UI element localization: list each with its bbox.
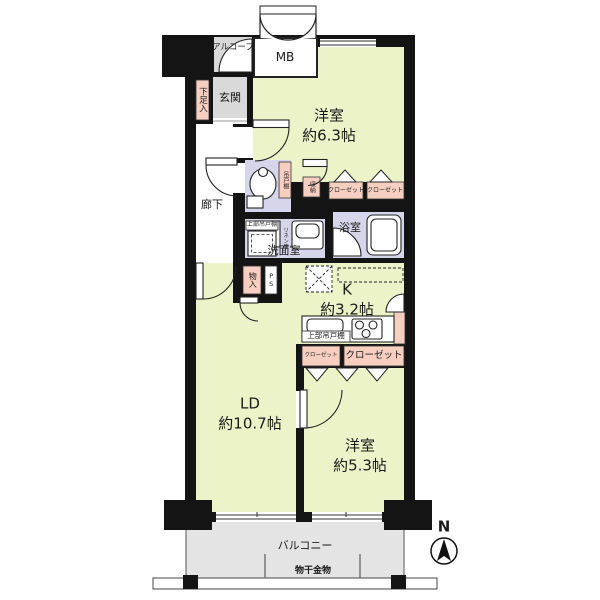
bedroom2-size: 約5.3帖 (333, 456, 387, 476)
upper-cabinet-label: 上部吊戸棚 (307, 331, 345, 341)
bedroom1-label: 洋室 約6.3帖 (302, 107, 356, 146)
kitchen-name: K (320, 281, 374, 301)
meter-box (254, 6, 317, 77)
bedroom1-name: 洋室 (302, 107, 356, 127)
washroom-label: 洗面室 (268, 244, 301, 258)
north-label: N (438, 517, 451, 537)
kitchen-cabinet-strip (394, 312, 405, 344)
kitchen-sink (307, 319, 343, 332)
closet1-label: クローゼット (328, 187, 364, 195)
living-dining-label: LD 約10.7帖 (218, 395, 281, 434)
bedroom1-size: 約6.3帖 (302, 126, 356, 146)
bath-label: 浴室 (339, 221, 361, 235)
toilet-cupboard-label: 吊戸棚 (281, 171, 289, 189)
laundry-hardware-label: 物干金物 (295, 566, 331, 578)
bedroom2-name: 洋室 (333, 437, 387, 457)
living-dining-name: LD (218, 395, 281, 415)
bedroom2-label: 洋室 約5.3帖 (333, 437, 387, 476)
toilet-counter (247, 196, 263, 208)
kitchen-size: 約3.2帖 (320, 300, 374, 320)
floor-plan-drawing (0, 0, 600, 600)
closet2-label: クローゼット (367, 187, 403, 195)
pipe-space-label: PS (267, 272, 275, 288)
balcony-label: バルコニー (278, 539, 333, 553)
hallway-label: 廊下 (201, 198, 223, 212)
storage-label: 収納 (308, 181, 316, 193)
kitchen-label: K 約3.2帖 (320, 281, 374, 320)
closet4-label: クローゼット (345, 350, 402, 362)
hallway-floor (196, 124, 233, 263)
living-dining-size: 約10.7帖 (218, 414, 281, 434)
floor-plan: アルコーブ MB 下足入 玄関 洋室 約6.3帖 廊下 吊戸棚 収納 クローゼッ… (0, 0, 600, 600)
closet3-label: クローゼット (304, 352, 337, 359)
meter-box-label: MB (276, 50, 295, 66)
utility-closet-label: 物入 (247, 272, 257, 288)
alcove-label: アルコーブ (212, 42, 254, 53)
shoe-cabinet-label: 下足入 (196, 87, 207, 113)
entrance-label: 玄関 (219, 91, 241, 105)
north-arrow (431, 538, 457, 564)
washer-cupboard-label: 上部吊戸棚 (247, 221, 277, 229)
